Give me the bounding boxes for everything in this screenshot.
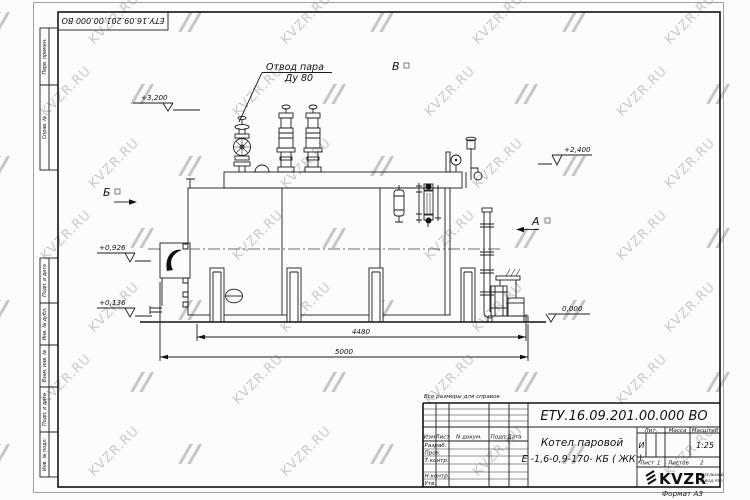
- drum-end-gear: [446, 137, 482, 188]
- margin-label: Инв. № дубл.: [42, 308, 48, 341]
- lit-label: Лит.: [644, 428, 658, 434]
- view-label-b: Б: [103, 186, 111, 199]
- manhole: [226, 289, 243, 303]
- top-stamp: ЕТУ.16.09.201.00.000 ВО: [58, 12, 168, 30]
- level-gauge-cylinder: [394, 185, 404, 222]
- row-utv: Утв.: [425, 481, 437, 487]
- elev-3200: +3,200: [141, 93, 168, 102]
- scale-value: 1:25: [696, 441, 714, 450]
- top-stamp-docnumber: ЕТУ.16.09.201.00.000 ВО: [62, 16, 165, 25]
- scale-label: Масштаб: [692, 428, 719, 434]
- col-data: Дата: [506, 435, 522, 441]
- col-ndoc: N докум.: [456, 435, 482, 441]
- row-prov: Пров.: [425, 451, 441, 457]
- sheets-value: 2: [700, 461, 704, 467]
- kvzr-logo-sub1: КОТЕЛЬНЫЙ: [698, 472, 723, 477]
- margin-label: Справ. №: [42, 116, 48, 139]
- title-block: Все размеры для справок ЕТУ.16.09.201.00…: [423, 394, 724, 498]
- boiler-view: [140, 105, 546, 322]
- doc-number: ЕТУ.16.09.201.00.000 ВО: [540, 409, 707, 424]
- margin-label: Подп. и дата: [42, 393, 48, 426]
- elev-2400: +2,400: [564, 145, 591, 154]
- product-name-2: Е -1,6-0,9-170- КБ ( ЖК ): [522, 454, 643, 465]
- sheet-label: Лист: [639, 461, 655, 467]
- margin-label: Подп. и дата: [42, 264, 48, 297]
- support-legs: [210, 268, 475, 322]
- downcomer-pipe: [480, 208, 494, 318]
- col-podp: Подп.: [491, 435, 508, 441]
- lit-value: И: [639, 441, 645, 450]
- kvzr-logo: KVZR КОТЕЛЬНЫЙ ЗАВОД РЭП: [646, 470, 724, 488]
- view-label-v: В: [392, 60, 400, 73]
- fan-unit: [488, 269, 528, 322]
- elev-0136: +0,136: [99, 298, 126, 307]
- dome: [253, 165, 271, 172]
- sheet-value: 1: [657, 461, 661, 467]
- kvzr-logo-icon: [646, 471, 656, 484]
- view-label-a: А: [531, 215, 540, 228]
- col-izm: Изм: [424, 435, 436, 441]
- margin-label: Взам. инв. №: [42, 350, 48, 383]
- dim-4480: 4480: [352, 327, 371, 336]
- margin-column: Перв. примен. Справ. № Подп. и дата Инв.…: [40, 28, 58, 477]
- row-razrab: Разраб.: [425, 443, 447, 449]
- safety-valve-1: [277, 105, 295, 172]
- safety-valve-2: [304, 105, 322, 172]
- mass-label: Масса: [669, 428, 687, 434]
- row-tkontr: Т.контр.: [425, 458, 449, 464]
- col-list: Лист: [434, 435, 450, 441]
- kvzr-logo-sub2: ЗАВОД РЭП: [699, 478, 722, 483]
- steam-valve: [234, 116, 251, 172]
- format-label: Формат А3: [662, 489, 703, 498]
- callout-line1: Отвод пара: [266, 62, 324, 73]
- sheets-label: Листов: [667, 461, 689, 467]
- callout-line2: Ду 80: [284, 73, 313, 84]
- dim-5000: 5000: [335, 347, 354, 356]
- reference-note: Все размеры для справок: [424, 394, 501, 400]
- row-nkontr: Н.контр.: [425, 474, 450, 480]
- margin-label: Инв. № подл.: [42, 438, 48, 471]
- elev-0926: +0,926: [99, 243, 126, 252]
- margin-label: Перв. примен.: [42, 38, 48, 74]
- product-name-1: Котел паровой: [541, 437, 624, 449]
- water-gauge-glass: [416, 183, 441, 227]
- burner: [150, 243, 190, 314]
- drawing-canvas: ЕТУ.16.09.201.00.000 ВО Перв. примен. Сп…: [0, 0, 750, 500]
- elev-0000: 0,000: [562, 304, 583, 313]
- drawing-sheet: KVZR.RUKVZR.RUKVZR.RUKVZR.RUKVZR.RUKVZR.…: [0, 0, 750, 500]
